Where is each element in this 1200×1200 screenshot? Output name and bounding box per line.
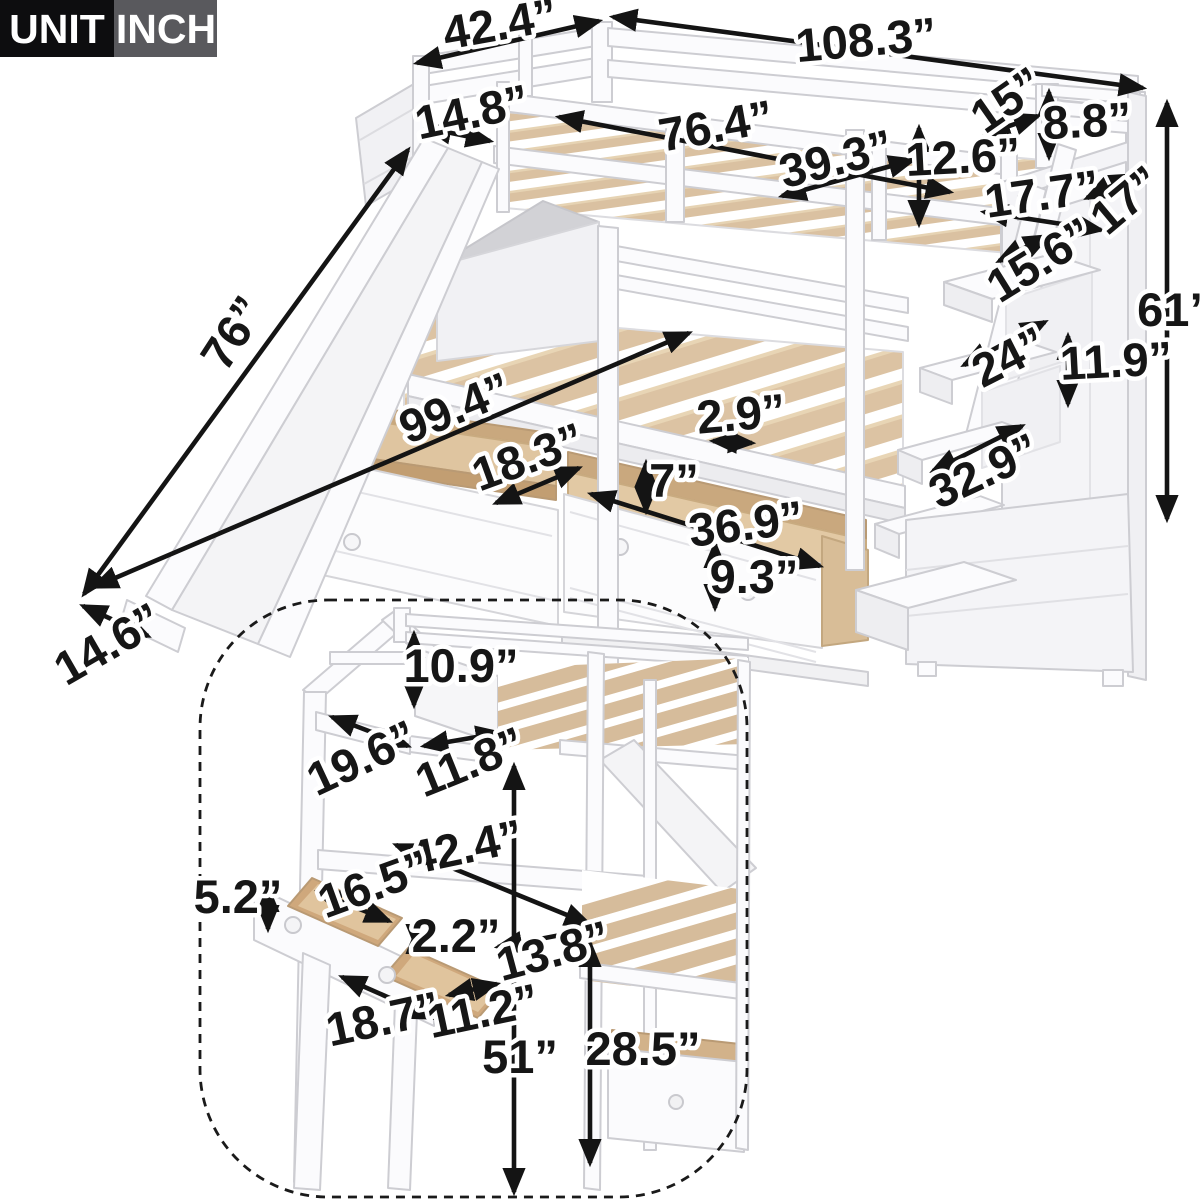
svg-text:10.9”: 10.9” [404,639,519,692]
svg-text:51”: 51” [482,1030,558,1083]
svg-text:9.3”: 9.3” [710,550,799,603]
svg-text:61”: 61” [1137,283,1200,336]
svg-text:2.2”: 2.2” [412,909,501,962]
svg-text:5.2”: 5.2” [194,870,283,923]
svg-text:11.9”: 11.9” [1058,331,1173,390]
svg-text:UNIT: UNIT [9,6,105,52]
svg-text:INCH: INCH [116,6,216,52]
svg-text:7”: 7” [649,454,699,507]
svg-text:2.9”: 2.9” [694,383,787,444]
svg-text:8.8”: 8.8” [1041,92,1132,150]
svg-text:28.5”: 28.5” [586,1022,701,1075]
